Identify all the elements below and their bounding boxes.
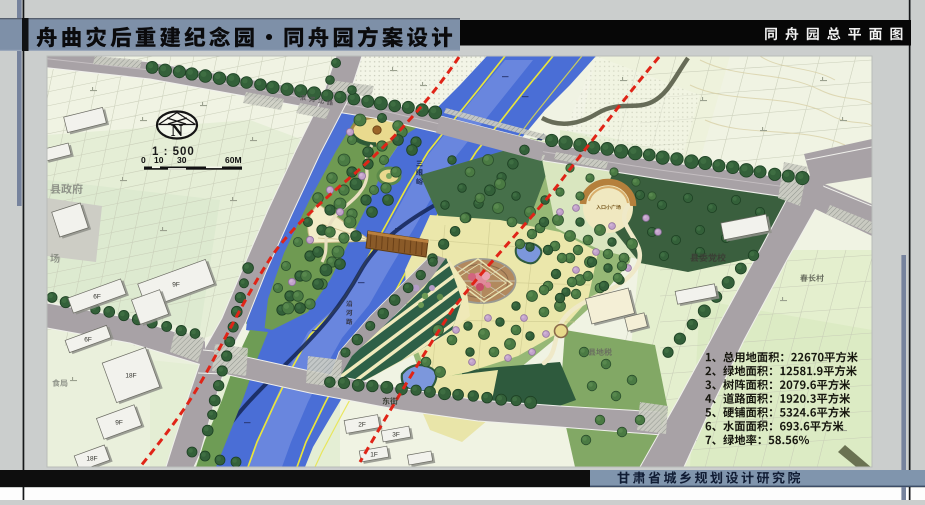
svg-text:0: 0 [141,155,146,165]
svg-text:2F: 2F [358,421,366,428]
svg-text:30: 30 [177,155,187,165]
svg-text:60M: 60M [225,155,242,165]
svg-text:10: 10 [154,155,164,165]
svg-text:9F: 9F [172,281,180,288]
svg-text:1F: 1F [370,451,378,458]
svg-text:N: N [171,121,184,140]
svg-text:6F: 6F [84,336,92,343]
svg-text:18F: 18F [86,455,97,462]
svg-text:18F: 18F [125,372,136,379]
svg-text:6F: 6F [93,293,101,300]
svg-text:9F: 9F [115,419,123,426]
svg-text:3F: 3F [392,431,400,438]
